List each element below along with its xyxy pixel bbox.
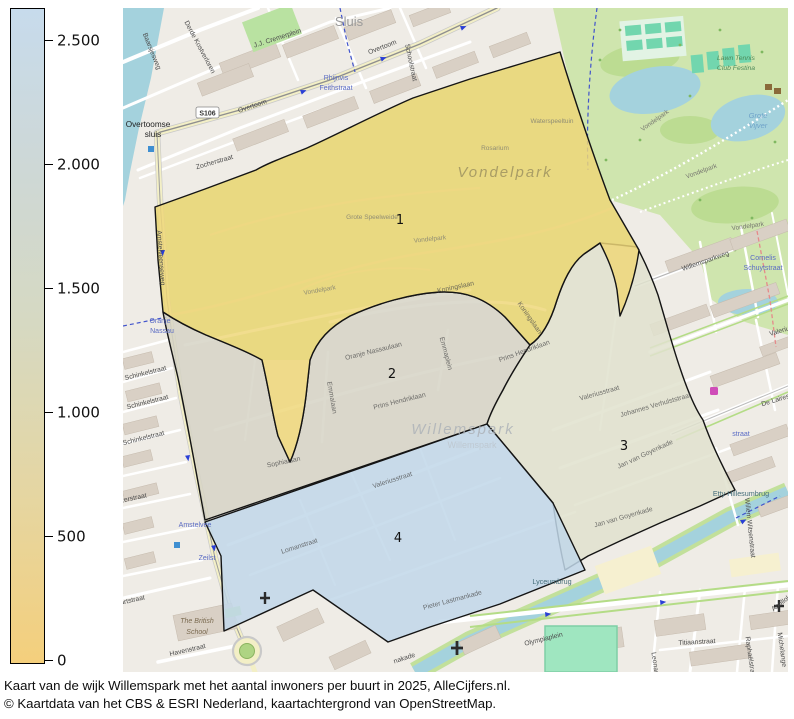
place-label-sluis: Sluis: [335, 14, 364, 29]
region-4-number: 4: [394, 531, 402, 546]
street-label-rhijnvis-feithstraat: Rhijnvis: [324, 75, 349, 82]
legend-tick: [45, 660, 53, 661]
poi-label-rosarium: Rosarium: [481, 145, 509, 152]
legend-tick-label: 500: [57, 528, 86, 546]
route-label-amstelveen: Amstelvee: [179, 522, 212, 529]
legend-tick: [45, 164, 53, 165]
choropleth-map: S106 Sluis Overtoomse sluis Overtoom Ove…: [123, 8, 788, 672]
legend-tick: [45, 40, 53, 41]
region-3-number: 3: [620, 439, 628, 454]
place-label-overtoomse-sluis: sluis: [145, 130, 161, 139]
bridge-label-lyceumbrug: Lyceumbrug: [532, 577, 571, 586]
legend-tick-label: 1.000: [57, 404, 100, 422]
route-label-zeilstraat: Zeilst: [199, 555, 216, 562]
place-label-overtoomse-sluis: Overtoomse: [126, 120, 171, 129]
street-label-rhijnvis-feithstraat: Feithstraat: [319, 85, 352, 92]
tram-stop-icon: [174, 542, 180, 548]
legend-colorbar: [10, 8, 45, 664]
region-2-number: 2: [388, 367, 396, 382]
poi-label-grote-speelweide: Grote Speelweide: [346, 214, 398, 221]
road-shield-s106: S106: [196, 107, 219, 118]
area-label-willemspark: Willemspark: [411, 421, 515, 438]
poi-label-waterspeeltuin: Waterspeeltuin: [530, 118, 573, 125]
legend-tick-label: 2.500: [57, 32, 100, 50]
legend-tick-label: 2.000: [57, 156, 100, 174]
poi-label-lawn-tennis: Club Festina: [717, 65, 755, 72]
water-label-grote-vijver: Vijver: [749, 121, 768, 130]
lock-icon: [148, 146, 154, 152]
street-label-cornelis-schuytstraat: Cornelis: [750, 255, 776, 262]
poi-label-british-school: School: [186, 629, 208, 636]
svg-text:S106: S106: [199, 111, 215, 118]
legend-tick: [45, 288, 53, 289]
legend-tick-label: 1.500: [57, 280, 100, 298]
poi-label-british-school: The British: [180, 618, 214, 625]
street-label-emmastraat: straat: [732, 431, 750, 438]
area-label-vondelpark: Vondelpark: [457, 164, 552, 181]
legend-tick: [45, 536, 53, 537]
roundabout: [233, 637, 261, 665]
region-1-number: 1: [396, 213, 404, 228]
map-title-caption: Kaart van de wijk Willemspark met het aa…: [4, 678, 790, 693]
map-figure: 2.500 2.000 1.500 1.000 500 0: [0, 0, 794, 719]
attribution-caption: © Kaartdata van het CBS & ESRI Nederland…: [4, 696, 790, 711]
route-label-oranje-nassau: Oranje: [149, 318, 170, 325]
poi-label-lawn-tennis: Lawn Tennis: [717, 55, 756, 62]
area-label-willemspark: Willemspark: [447, 440, 497, 450]
route-label-oranje-nassau: Nassau: [150, 328, 174, 335]
legend-tick: [45, 412, 53, 413]
street-label-cornelis-schuytstraat: Schuytstraat: [744, 265, 783, 272]
legend-tick-label: 0: [57, 652, 67, 670]
shop-icon: [710, 387, 718, 395]
water-label-grote-vijver: Grote: [749, 111, 768, 120]
bridge-label-etty-hillesumbrug: Etty Hillesumbrug: [713, 489, 769, 498]
